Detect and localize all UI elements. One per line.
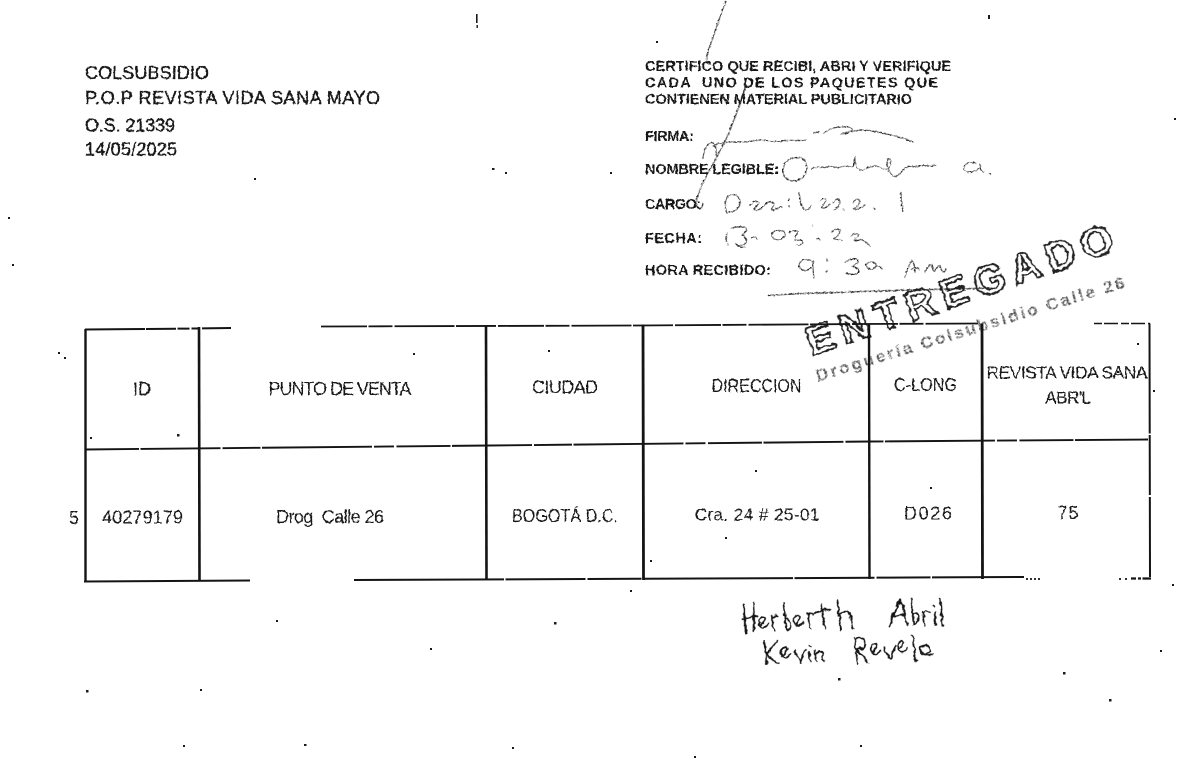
svg-text:P.O.P REVISTA VIDA SANA MAYO: P.O.P REVISTA VIDA SANA MAYO — [85, 88, 380, 108]
svg-text:DIRECCION: DIRECCION — [712, 376, 802, 396]
svg-text:CADA UNO DE LOS PAQUETES QUE: CADA UNO DE LOS PAQUETES QUE — [645, 76, 938, 92]
svg-text:FIRMA:: FIRMA: — [645, 129, 694, 145]
svg-text:14/05/2025: 14/05/2025 — [85, 140, 177, 160]
svg-text:C-LONG: C-LONG — [894, 375, 957, 395]
svg-text:ID: ID — [133, 379, 151, 399]
svg-text:5: 5 — [69, 508, 79, 528]
svg-text:Drog Calle 26: Drog Calle 26 — [276, 507, 384, 527]
svg-text:CARGO:: CARGO: — [645, 197, 701, 213]
svg-text:CERTIFICO QUE RECIBI, ABRI Y V: CERTIFICO QUE RECIBI, ABRI Y VERIFIQUE — [645, 59, 951, 75]
svg-text:ABR'L: ABR'L — [1045, 388, 1091, 408]
svg-text:COLSUBSIDIO: COLSUBSIDIO — [85, 63, 209, 83]
svg-text:BOGOTÁ D.C.: BOGOTÁ D.C. — [512, 506, 618, 526]
svg-text:CIUDAD: CIUDAD — [532, 378, 598, 398]
svg-text:HORA RECIBIDO:: HORA RECIBIDO: — [645, 263, 771, 279]
svg-text:CONTIENEN MATERIAL PUBLICITARI: CONTIENEN MATERIAL PUBLICITARIO — [645, 92, 912, 108]
svg-text:REVISTA VIDA SANA: REVISTA VIDA SANA — [987, 363, 1148, 383]
svg-text:PUNTO DE VENTA: PUNTO DE VENTA — [269, 379, 412, 399]
svg-text:40279179: 40279179 — [102, 508, 183, 528]
svg-text:Cra. 24 # 25-01: Cra. 24 # 25-01 — [695, 505, 820, 525]
svg-text:D026: D026 — [904, 504, 952, 524]
svg-text:O.S. 21339: O.S. 21339 — [85, 116, 175, 136]
svg-text:FECHA:: FECHA: — [645, 231, 702, 247]
svg-text:75: 75 — [1058, 503, 1079, 523]
